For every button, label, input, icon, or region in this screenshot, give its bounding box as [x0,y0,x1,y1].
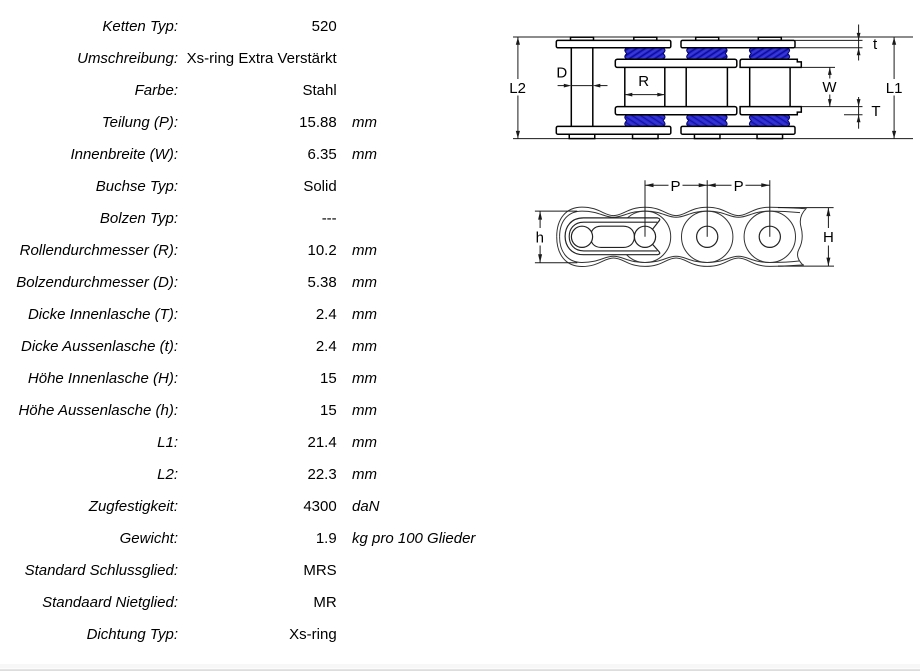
svg-text:D: D [556,65,567,82]
svg-text:t: t [873,36,878,53]
svg-text:L1: L1 [886,80,903,97]
svg-text:P: P [734,178,744,195]
svg-text:R: R [638,73,649,90]
svg-text:h: h [536,229,544,246]
svg-text:L2: L2 [509,80,526,97]
svg-text:T: T [871,103,880,120]
svg-text:H: H [823,229,834,246]
svg-text:W: W [822,79,837,96]
svg-text:P: P [670,178,680,195]
